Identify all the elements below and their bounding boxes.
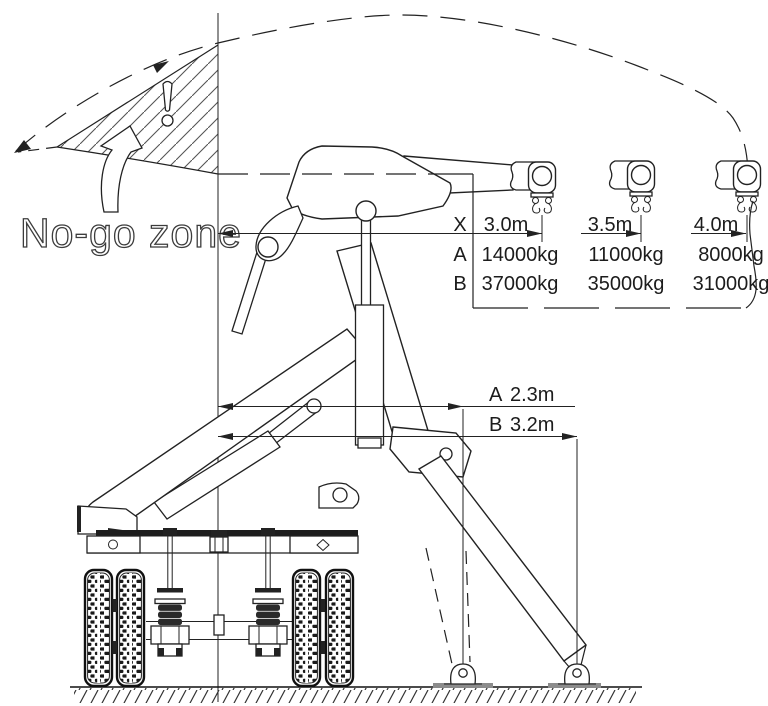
knuckle-pivot-upper (356, 201, 376, 221)
table-cell-b-3: 31000kg (693, 273, 768, 295)
dimension-b-value: 3.2m (510, 414, 554, 436)
crane-load-diagram-page: No-go zone (0, 0, 768, 706)
table-row-label-x: X (453, 214, 466, 236)
tire-left-inner (117, 570, 144, 686)
ground (70, 687, 642, 703)
knuckle-pivot-lower (258, 237, 278, 257)
chassis-left-box (87, 536, 140, 553)
tire-right-outer (326, 570, 353, 686)
table-cell-a-2: 11000kg (588, 244, 663, 266)
table-cell-b-1: 37000kg (482, 273, 559, 295)
table-row-label-b: B (453, 273, 466, 295)
table-cell-x-2: 3.5m (588, 214, 632, 236)
no-go-zone-label: No-go zone (20, 210, 242, 256)
table-cell-b-2: 35000kg (588, 273, 665, 295)
table-cell-x-1: 3.0m (484, 214, 528, 236)
kingpin-cap (211, 530, 227, 537)
ground-hatch (74, 688, 636, 703)
dimension-a-value: 2.3m (510, 384, 554, 406)
dimension-b-label: B (489, 414, 502, 436)
chassis-right-box (290, 536, 358, 553)
dimension-a-label: A (489, 384, 503, 406)
table-cell-a-1: 14000kg (482, 244, 559, 266)
tire-left-outer (85, 570, 112, 686)
table-cell-a-3: 8000kg (698, 244, 764, 266)
crane-load-diagram: No-go zone (0, 0, 768, 706)
tire-right-inner (293, 570, 320, 686)
kingpin (210, 537, 228, 552)
table-row-label-a: A (453, 244, 467, 266)
axle-center-bolt (214, 615, 224, 635)
